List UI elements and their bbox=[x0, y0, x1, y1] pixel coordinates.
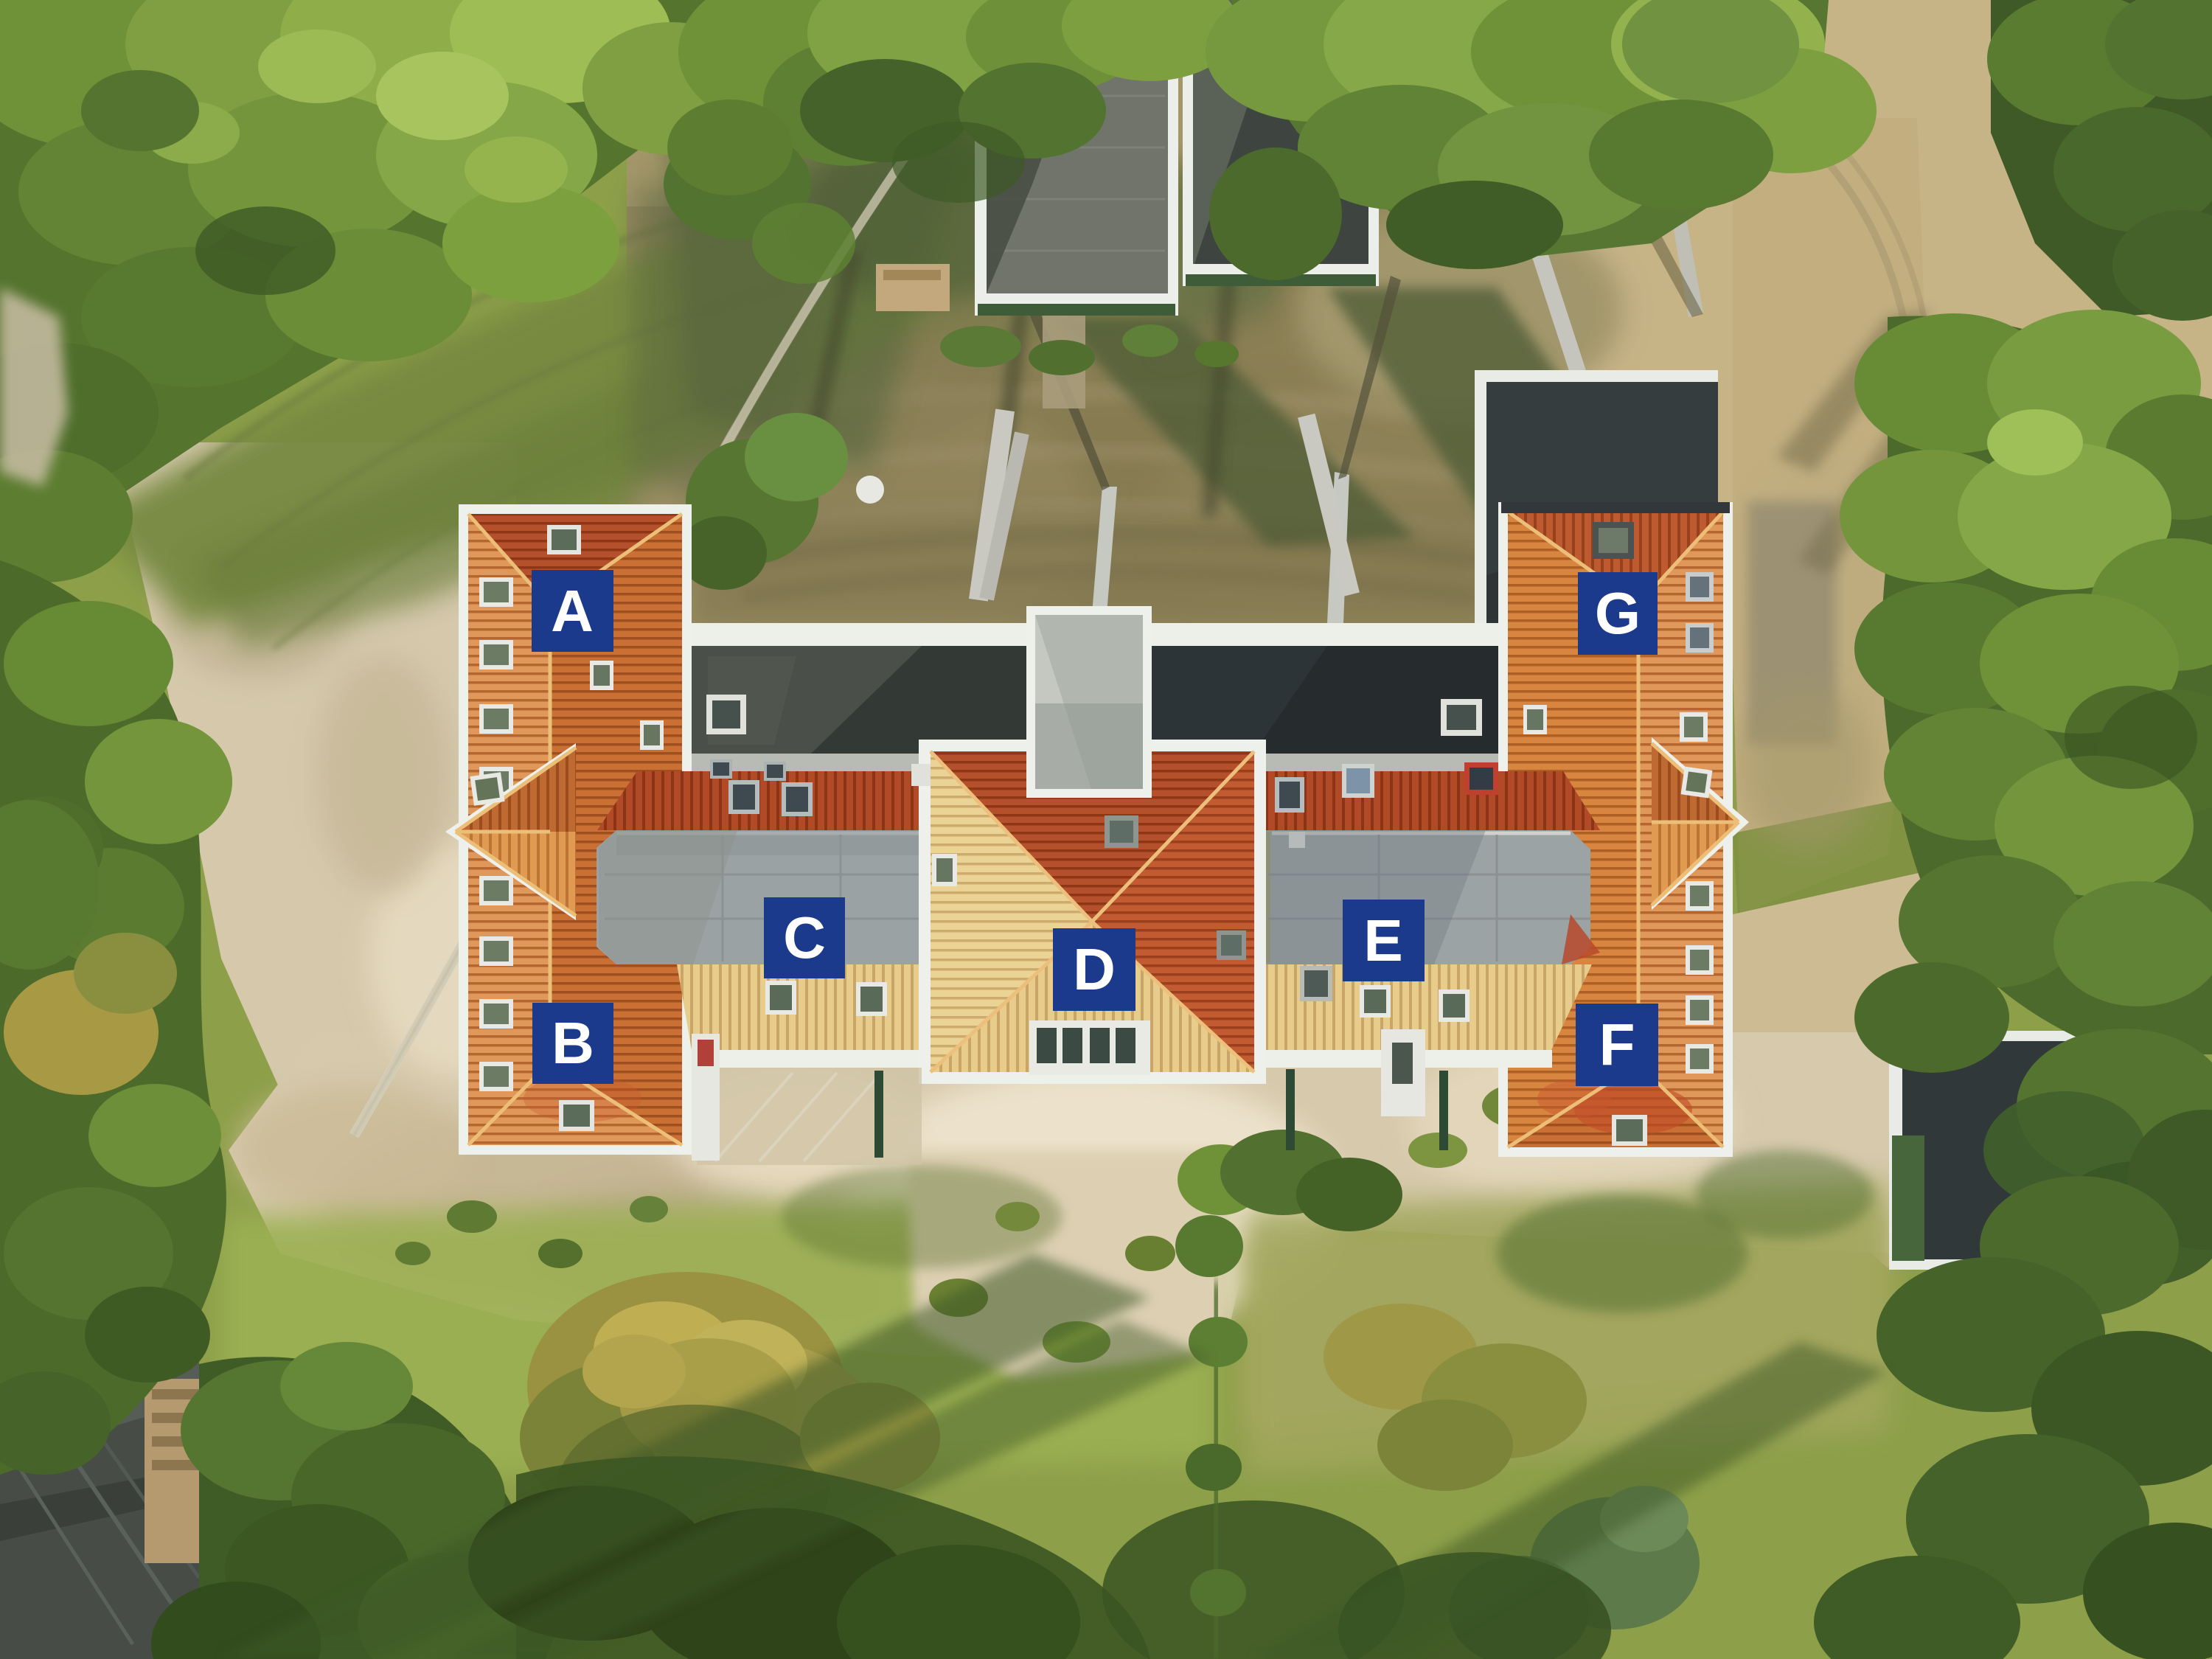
svg-text:A: A bbox=[551, 578, 594, 644]
svg-text:C: C bbox=[783, 905, 826, 970]
svg-text:E: E bbox=[1363, 908, 1402, 973]
svg-text:G: G bbox=[1595, 580, 1641, 646]
svg-text:F: F bbox=[1599, 1012, 1635, 1077]
svg-text:D: D bbox=[1073, 936, 1116, 1002]
svg-text:B: B bbox=[552, 1010, 594, 1076]
